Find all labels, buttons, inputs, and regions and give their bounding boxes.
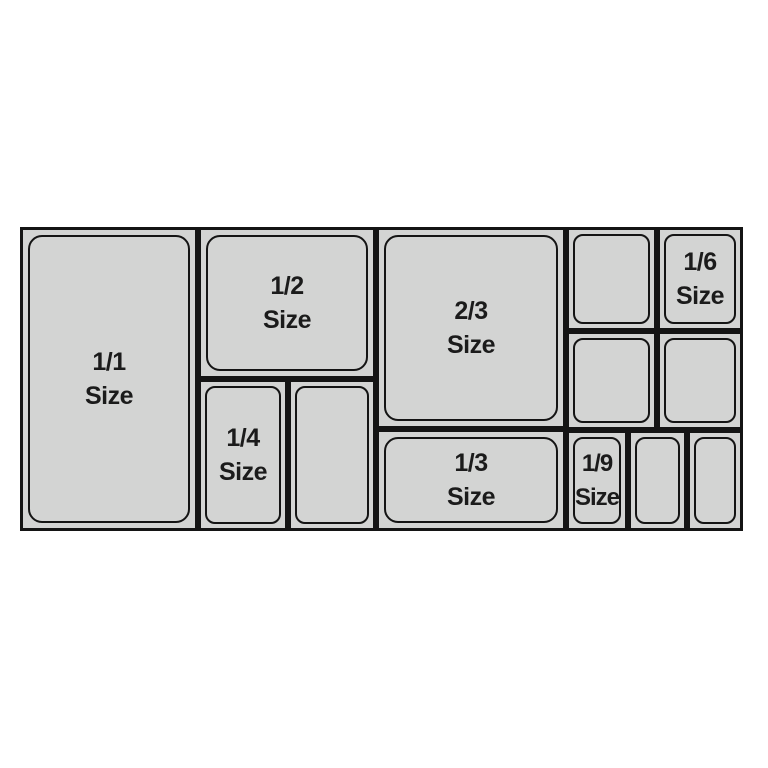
pan-1-6: 1/6 Size xyxy=(664,234,736,324)
pan-2-3: 2/3 Size xyxy=(384,235,558,421)
pan-1-3-label: 1/3 Size xyxy=(447,446,495,515)
pan-1-3: 1/3 Size xyxy=(384,437,558,523)
pan-1-9-unlabeled-2 xyxy=(694,437,736,524)
pan-1-6-size-word: Size xyxy=(676,279,724,314)
pan-2-3-size-word: Size xyxy=(447,328,495,363)
pan-1-1-label: 1/1 Size xyxy=(85,345,133,414)
pan-1-6-label: 1/6 Size xyxy=(676,245,724,314)
pan-1-6-fraction: 1/6 xyxy=(676,245,724,280)
pan-1-4-fraction: 1/4 xyxy=(219,421,267,456)
pan-1-9-fraction: 1/9 xyxy=(575,447,619,480)
pan-cell-2-3: 2/3 Size xyxy=(376,227,566,429)
pan-size-diagram-canvas: 1/1 Size 1/2 Size 1/4 Size xyxy=(0,0,768,768)
pan-cell-1-4-unlabeled xyxy=(288,379,376,531)
pan-cell-1-9-unlabeled-2 xyxy=(687,430,743,531)
pan-1-9-size-word: Size xyxy=(575,481,619,514)
pan-cell-1-1: 1/1 Size xyxy=(20,227,198,531)
pan-1-3-fraction: 1/3 xyxy=(447,446,495,481)
pan-1-4-size-word: Size xyxy=(219,455,267,490)
pan-1-2-fraction: 1/2 xyxy=(263,269,311,304)
pan-cell-1-6-unlabeled-1 xyxy=(566,227,657,331)
pan-cell-1-2: 1/2 Size xyxy=(198,227,376,379)
pan-cell-1-9-unlabeled-1 xyxy=(628,430,687,531)
pan-1-3-size-word: Size xyxy=(447,480,495,515)
pan-cell-1-6-unlabeled-2 xyxy=(566,331,657,430)
pan-1-6-unlabeled-3 xyxy=(664,338,736,423)
pan-1-2-size-word: Size xyxy=(263,303,311,338)
pan-1-2: 1/2 Size xyxy=(206,235,368,371)
pan-1-9-label: 1/9 Size xyxy=(575,447,619,513)
pan-1-2-label: 1/2 Size xyxy=(263,269,311,338)
pan-2-3-fraction: 2/3 xyxy=(447,294,495,329)
pan-2-3-label: 2/3 Size xyxy=(447,294,495,363)
pan-1-4-unlabeled xyxy=(295,386,369,524)
pan-cell-1-6: 1/6 Size xyxy=(657,227,743,331)
pan-size-diagram: 1/1 Size 1/2 Size 1/4 Size xyxy=(20,227,743,531)
pan-cell-1-3: 1/3 Size xyxy=(376,429,566,531)
pan-1-4: 1/4 Size xyxy=(205,386,281,524)
pan-1-6-unlabeled-1 xyxy=(573,234,650,324)
pan-1-6-unlabeled-2 xyxy=(573,338,650,423)
pan-1-1-fraction: 1/1 xyxy=(85,345,133,380)
pan-1-4-label: 1/4 Size xyxy=(219,421,267,490)
pan-1-9: 1/9 Size xyxy=(573,437,621,524)
pan-cell-1-6-unlabeled-3 xyxy=(657,331,743,430)
pan-1-1: 1/1 Size xyxy=(28,235,190,523)
pan-cell-1-9: 1/9 Size xyxy=(566,430,628,531)
pan-1-9-unlabeled-1 xyxy=(635,437,680,524)
pan-1-1-size-word: Size xyxy=(85,379,133,414)
pan-cell-1-4: 1/4 Size xyxy=(198,379,288,531)
